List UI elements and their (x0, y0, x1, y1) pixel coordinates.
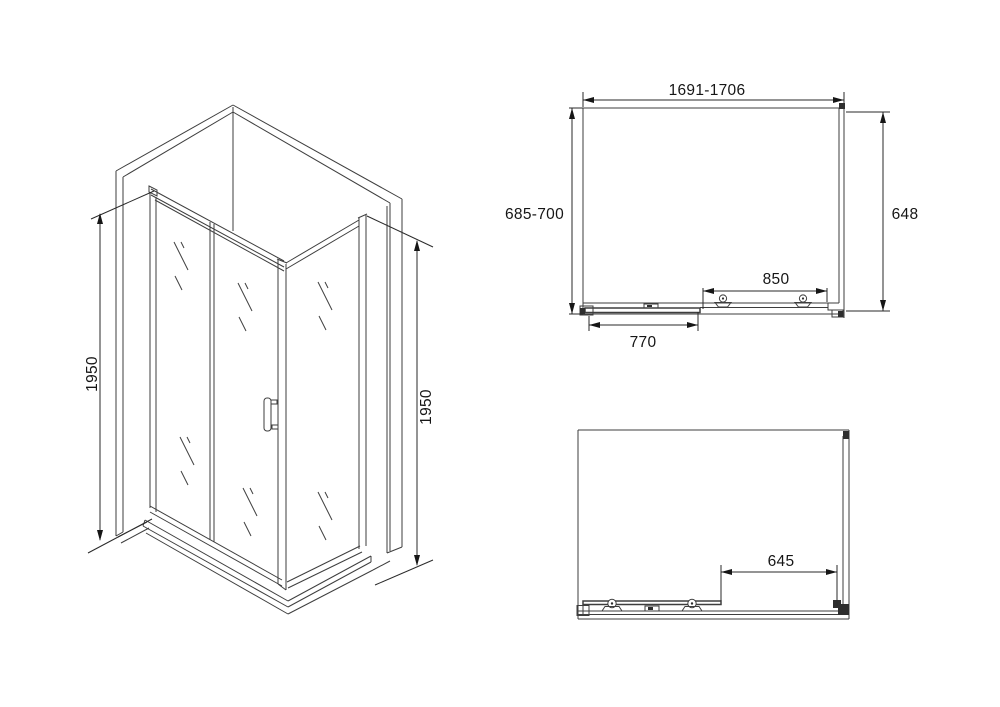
dimension-height-left: 1950 (84, 191, 154, 553)
front-view: 645 (577, 430, 849, 619)
height-left-label: 1950 (84, 356, 101, 392)
bracket-span-label: 850 (763, 271, 790, 288)
dimension-opening-645: 645 (721, 553, 837, 606)
door-panel-label: 770 (630, 334, 657, 351)
dimension-overall-depth: 685-700 (505, 108, 583, 314)
dimension-door-panel-770: 770 (589, 312, 698, 351)
roller-bracket (715, 295, 731, 307)
door-handle (264, 398, 278, 431)
floor-lines (118, 522, 390, 570)
glass-shine-marks (174, 242, 332, 540)
front-view-outline (578, 430, 849, 619)
opening-width-label: 645 (768, 553, 795, 570)
dimension-side-panel-648: 648 (846, 112, 918, 311)
side-panel-label: 648 (892, 206, 919, 223)
overall-depth-label: 685-700 (505, 206, 564, 223)
isometric-view: 1950 1950 (84, 105, 435, 614)
return-panel-frame (286, 214, 367, 588)
dimension-overall-width: 1691-1706 (583, 82, 844, 107)
top-view: 1691-1706 685-700 648 850 (505, 82, 918, 351)
top-view-outline (583, 102, 845, 318)
top-view-track (580, 295, 844, 317)
dimension-height-right: 1950 (367, 216, 435, 585)
roller-bracket (795, 295, 811, 307)
front-view-track (577, 599, 849, 619)
front-door-frame (149, 186, 287, 590)
technical-drawing-sheet: 1950 1950 (0, 0, 1000, 707)
overall-width-label: 1691-1706 (669, 82, 746, 99)
shower-enclosure-drawing: 1950 1950 (0, 0, 1000, 707)
height-right-label: 1950 (418, 389, 435, 425)
